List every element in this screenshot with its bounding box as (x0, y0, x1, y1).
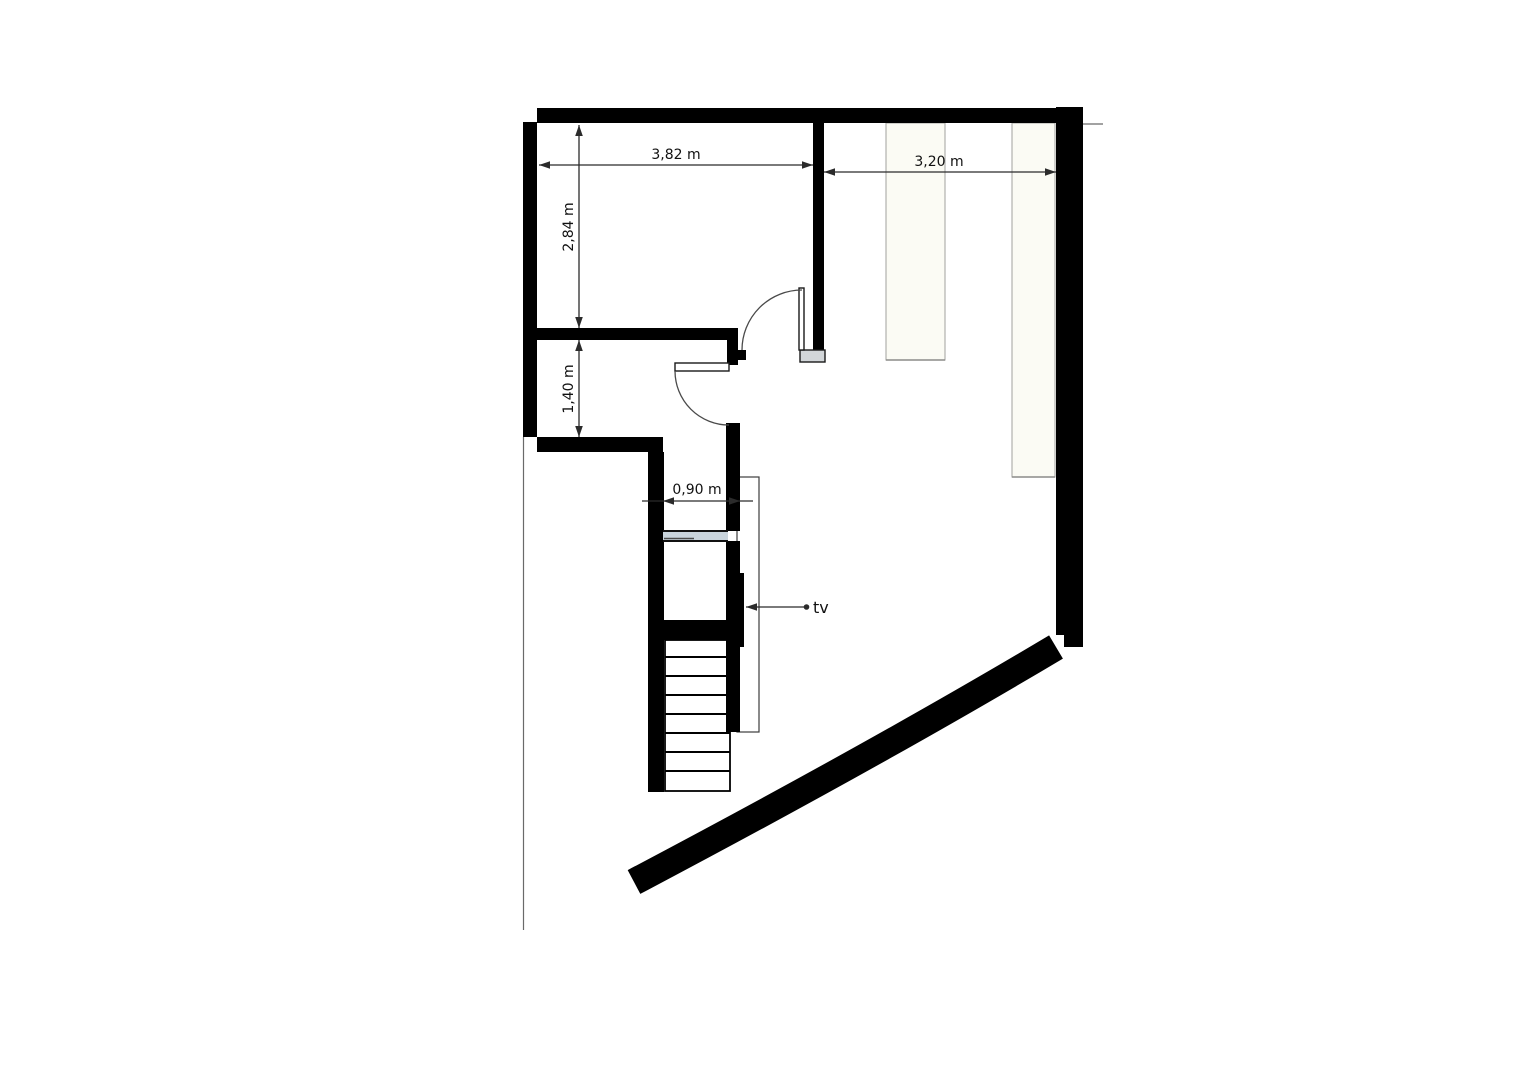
stair-window (663, 531, 728, 541)
tv-callout-dot (804, 604, 810, 610)
wall-interior-upper (535, 328, 738, 340)
arrow-up-icon (575, 340, 583, 351)
door-upper-leaf (799, 288, 804, 350)
dim-label-stair-opening: 0,90 m (672, 482, 721, 498)
wall-right-stub (1064, 635, 1083, 647)
dim-label-top-left-width: 3,82 m (651, 147, 700, 163)
arrow-right-icon (802, 161, 813, 169)
stair-landing-wall (648, 620, 740, 640)
floor-plan-canvas: 3,82 m 3,20 m 2,84 m 1,40 m 0,90 m tv (0, 0, 1527, 1080)
arrow-down-icon (575, 426, 583, 437)
dim-label-upper-left-height: 2,84 m (561, 202, 577, 251)
staircase (665, 640, 730, 791)
arrow-down-icon (575, 317, 583, 328)
floor-plan-page: 3,82 m 3,20 m 2,84 m 1,40 m 0,90 m tv (0, 0, 1527, 1080)
wall-left (523, 122, 537, 437)
door-lower-leaf (675, 363, 729, 371)
window-glass (663, 531, 728, 541)
dim-label-lower-left-height: 1,40 m (561, 364, 577, 413)
stair-tread-area (665, 640, 730, 791)
door-lower-swing-arc (675, 371, 729, 425)
arrow-left-icon (539, 161, 550, 169)
wardrobe-outline-right (1012, 123, 1055, 477)
arrow-up-icon (575, 125, 583, 136)
arrow-left-icon (663, 497, 674, 505)
door-lower (675, 363, 729, 425)
wall-interior-lower (537, 437, 663, 452)
arrow-left-icon (824, 168, 835, 176)
door-jamb-nub (738, 350, 746, 360)
door-upper-swing-arc (742, 290, 802, 350)
tv-unit (739, 573, 745, 647)
door-jamb-column (727, 328, 738, 365)
furniture-outlines (886, 123, 1055, 477)
tv-label: tv (813, 598, 829, 617)
stair-wall-right-upper (726, 423, 740, 531)
door-upper (742, 288, 804, 350)
dimension-lines (539, 125, 1056, 611)
dim-label-top-right-width: 3,20 m (914, 154, 963, 170)
door-threshold (800, 350, 825, 362)
wall-middle-partition (813, 122, 824, 350)
dimension-arrowheads (539, 125, 1056, 611)
wall-top (537, 108, 1060, 123)
wall-right (1056, 107, 1083, 635)
